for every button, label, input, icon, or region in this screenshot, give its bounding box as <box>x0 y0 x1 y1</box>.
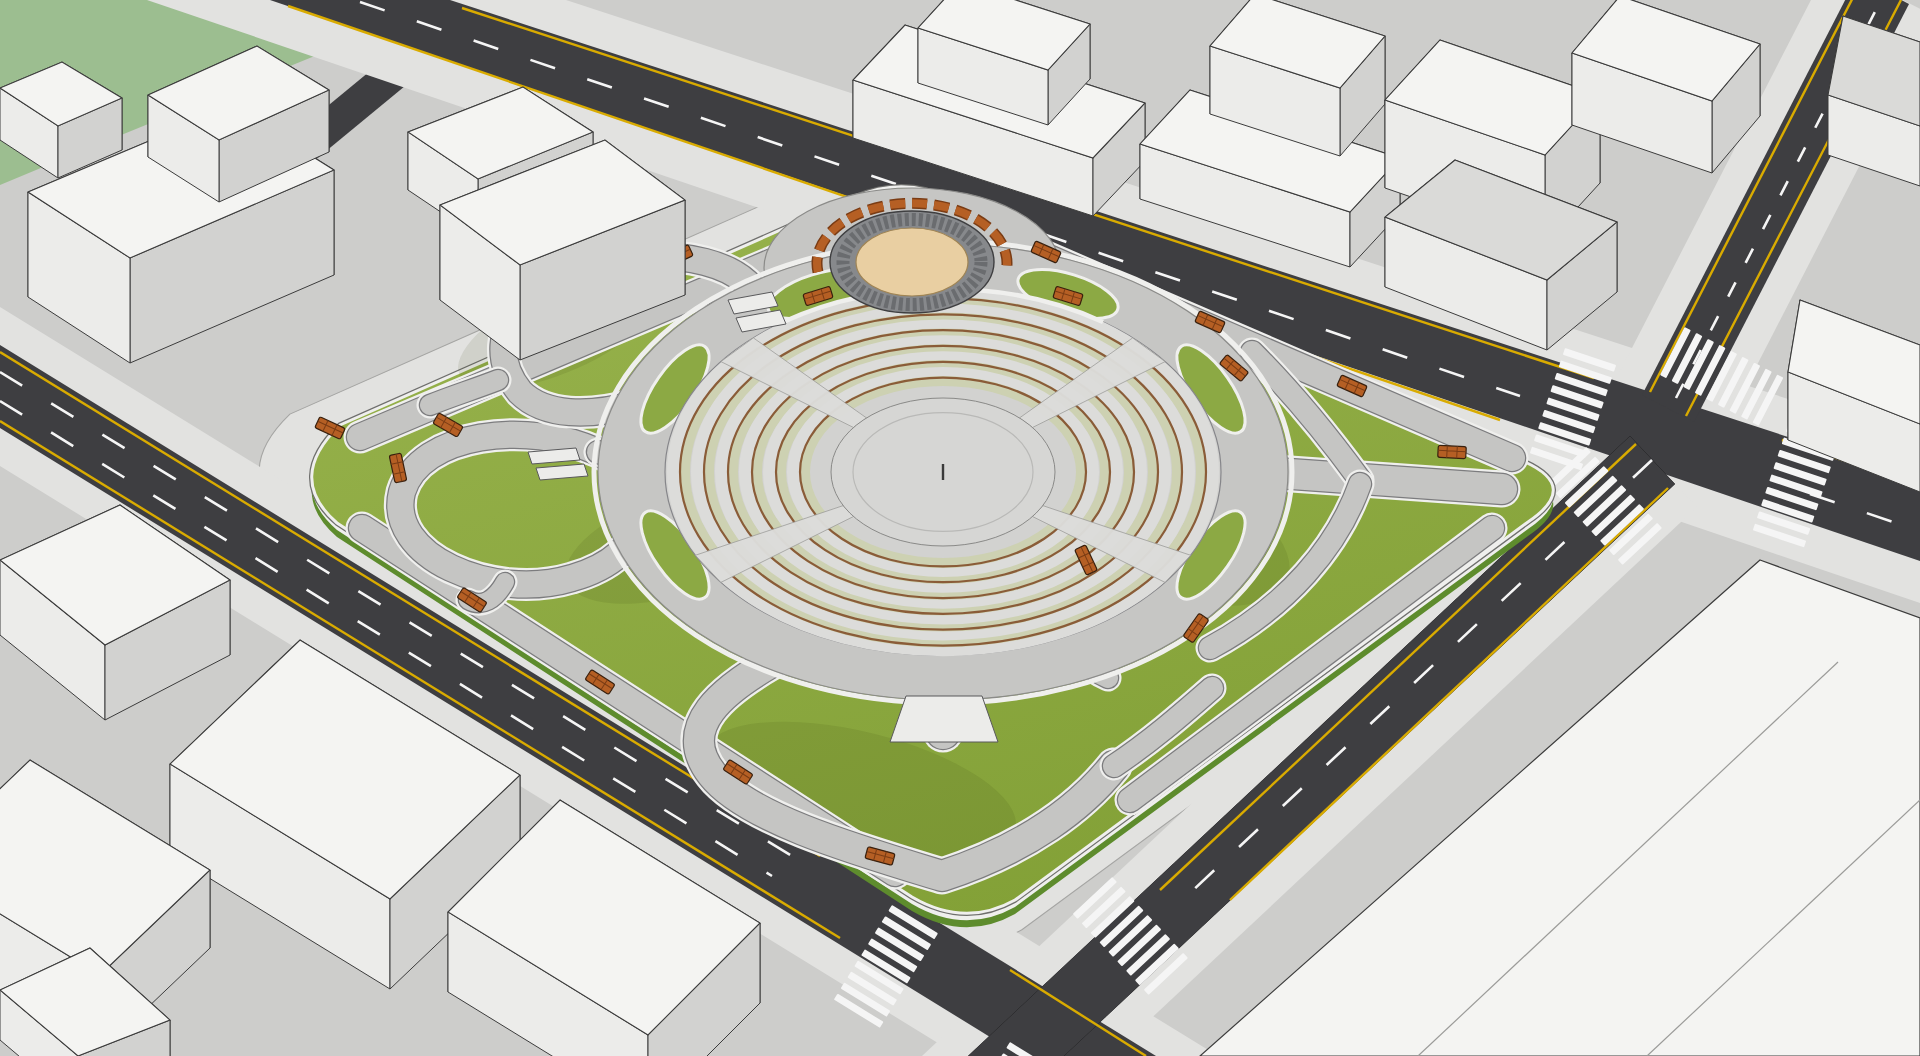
walkway-east-spur <box>1262 472 1502 489</box>
bowl-entry-ramp <box>890 696 998 742</box>
bench <box>1438 445 1467 458</box>
scene-canvas <box>0 0 1920 1056</box>
render-viewport <box>0 0 1920 1056</box>
stage-sand-floor <box>856 228 968 296</box>
